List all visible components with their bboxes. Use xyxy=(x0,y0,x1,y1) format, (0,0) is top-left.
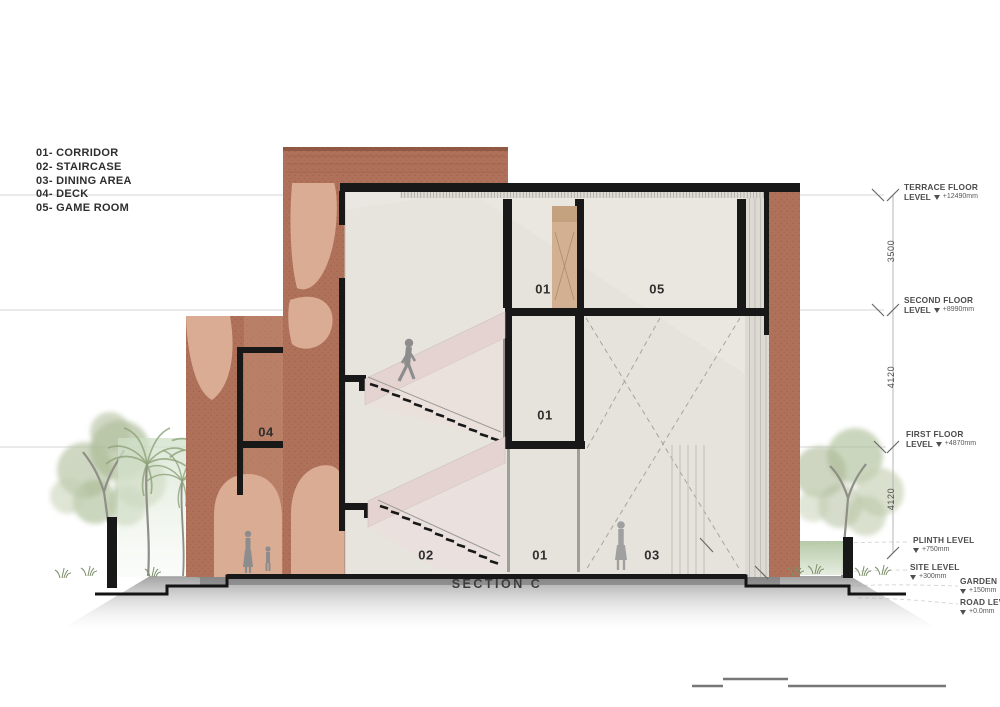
level-name: FIRST FLOOR xyxy=(906,429,998,439)
level-name: GARDEN LEVEL xyxy=(960,576,1000,586)
facade-arch-bottom xyxy=(291,465,344,577)
compound-wall-post-right xyxy=(843,537,853,578)
legend-item-dining: 03- DINING AREA xyxy=(36,175,132,189)
level-value: +0.0mm xyxy=(969,607,994,617)
level-value: +300mm xyxy=(919,572,946,582)
level-value: +750mm xyxy=(922,545,949,555)
level-marker-icon xyxy=(934,195,940,200)
level-marker-icon xyxy=(910,575,916,580)
legend: 01- CORRIDOR 02- STAIRCASE 03- DINING AR… xyxy=(36,147,132,216)
level-marker-icon xyxy=(936,442,942,447)
level-value: +150mm xyxy=(969,586,996,596)
level-value: +4870mm xyxy=(945,439,976,449)
level-second: SECOND FLOOR LEVEL +8990mm xyxy=(904,295,996,315)
level-name: SITE LEVEL xyxy=(910,562,1000,572)
level-terrace: TERRACE FLOOR LEVEL +12490mm xyxy=(904,182,996,202)
level-marker-icon xyxy=(960,589,966,594)
room-label-dining: 03 xyxy=(644,548,659,563)
level-plinth: PLINTH LEVEL +750mm xyxy=(913,535,1000,555)
level-name: ROAD LEVEL xyxy=(960,597,1000,607)
architectural-section-sheet: 01- CORRIDOR 02- STAIRCASE 03- DINING AR… xyxy=(0,0,1000,707)
section-drawing-canvas xyxy=(0,0,1000,707)
legend-item-staircase: 02- STAIRCASE xyxy=(36,161,132,175)
section-title: SECTION C xyxy=(452,577,543,591)
dimension-4120-b: 4120 xyxy=(886,479,896,519)
corridor-door xyxy=(552,206,577,308)
level-garden: GARDEN LEVEL +150mm xyxy=(960,576,1000,596)
level-marker-icon xyxy=(913,548,919,553)
scale-bar xyxy=(692,679,946,686)
level-marker-icon xyxy=(960,610,966,615)
legend-item-deck: 04- DECK xyxy=(36,188,132,202)
roof-hatch-band xyxy=(400,192,764,198)
level-name: TERRACE FLOOR xyxy=(904,182,996,192)
compound-wall-post-left xyxy=(107,517,117,588)
room-label-mid-corridor: 01 xyxy=(537,408,552,423)
level-name: SECOND FLOOR xyxy=(904,295,996,305)
level-road: ROAD LEVEL +0.0mm xyxy=(960,597,1000,617)
level-first: FIRST FLOOR LEVEL +4870mm xyxy=(906,429,998,449)
dimension-3500: 3500 xyxy=(886,231,896,271)
level-name: PLINTH LEVEL xyxy=(913,535,1000,545)
dimension-4120-a: 4120 xyxy=(886,357,896,397)
level-value: +12490mm xyxy=(943,192,978,202)
level-name-2: LEVEL xyxy=(904,192,931,202)
level-name-2: LEVEL xyxy=(904,305,931,315)
roof-slab xyxy=(340,183,800,198)
level-name-2: LEVEL xyxy=(906,439,933,449)
legend-item-corridor: 01- CORRIDOR xyxy=(36,147,132,161)
room-label-staircase: 02 xyxy=(418,548,433,563)
right-wall xyxy=(764,183,800,577)
room-label-deck: 04 xyxy=(258,425,273,440)
level-value: +8990mm xyxy=(943,305,974,315)
room-label-ground-corridor: 01 xyxy=(532,548,547,563)
room-label-top-corridor: 01 xyxy=(535,282,550,297)
room-label-game-room: 05 xyxy=(649,282,664,297)
level-marker-icon xyxy=(934,308,940,313)
legend-item-gameroom: 05- GAME ROOM xyxy=(36,202,132,216)
